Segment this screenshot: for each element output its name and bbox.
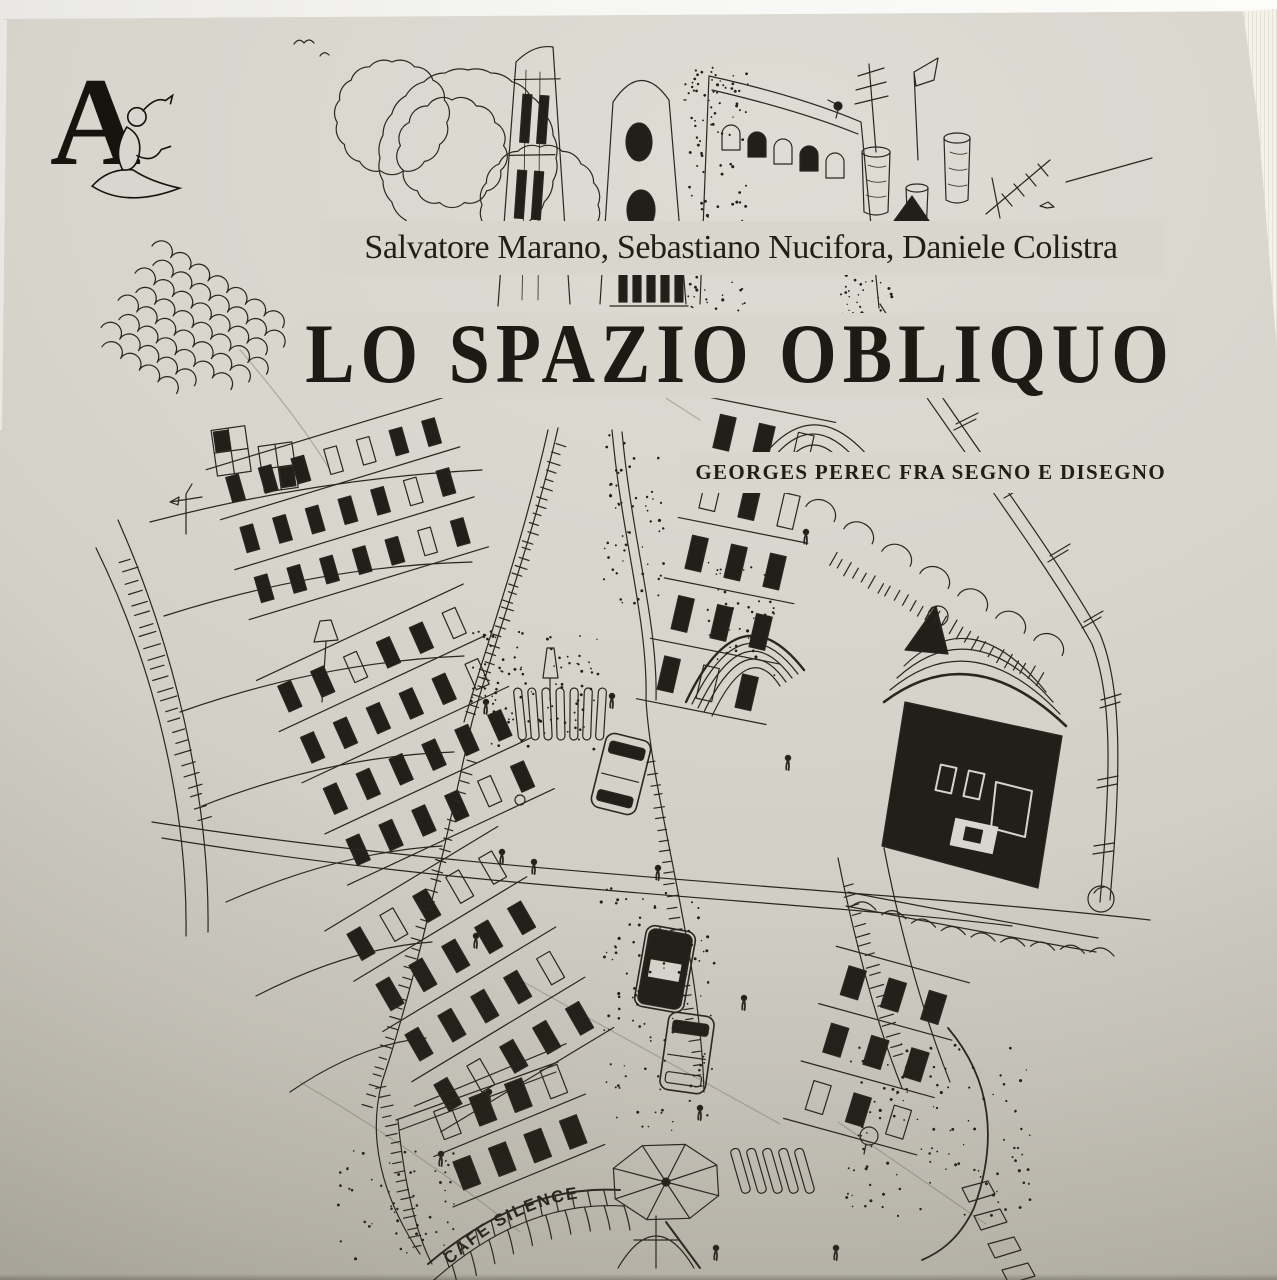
publisher-logo: A [50, 60, 220, 230]
book-subtitle-row: GEORGES PEREC FRA SEGNO E DISEGNO [300, 452, 1180, 493]
parasol-sketch [613, 1144, 718, 1268]
cafe-corner-sketch: CAFE SILENCE [396, 1044, 630, 1280]
book-subtitle: GEORGES PEREC FRA SEGNO E DISEGNO [681, 452, 1180, 493]
author-line: Salvatore Marano, Sebastiano Nucifora, D… [318, 221, 1164, 275]
book-cover: CAFE SILENCE Salvatore Marano, Sebastian… [0, 0, 1277, 1280]
roof-tiles-sketch [93, 237, 298, 429]
book-title: LO SPAZIO OBLIQUO [300, 313, 1180, 398]
right-buildings-sketch [636, 304, 1121, 1159]
photo-background: CAFE SILENCE Salvatore Marano, Sebastian… [0, 0, 1277, 1280]
cherub-figure-icon [86, 92, 198, 210]
chimneys-antennas-sketch [294, 40, 1054, 237]
